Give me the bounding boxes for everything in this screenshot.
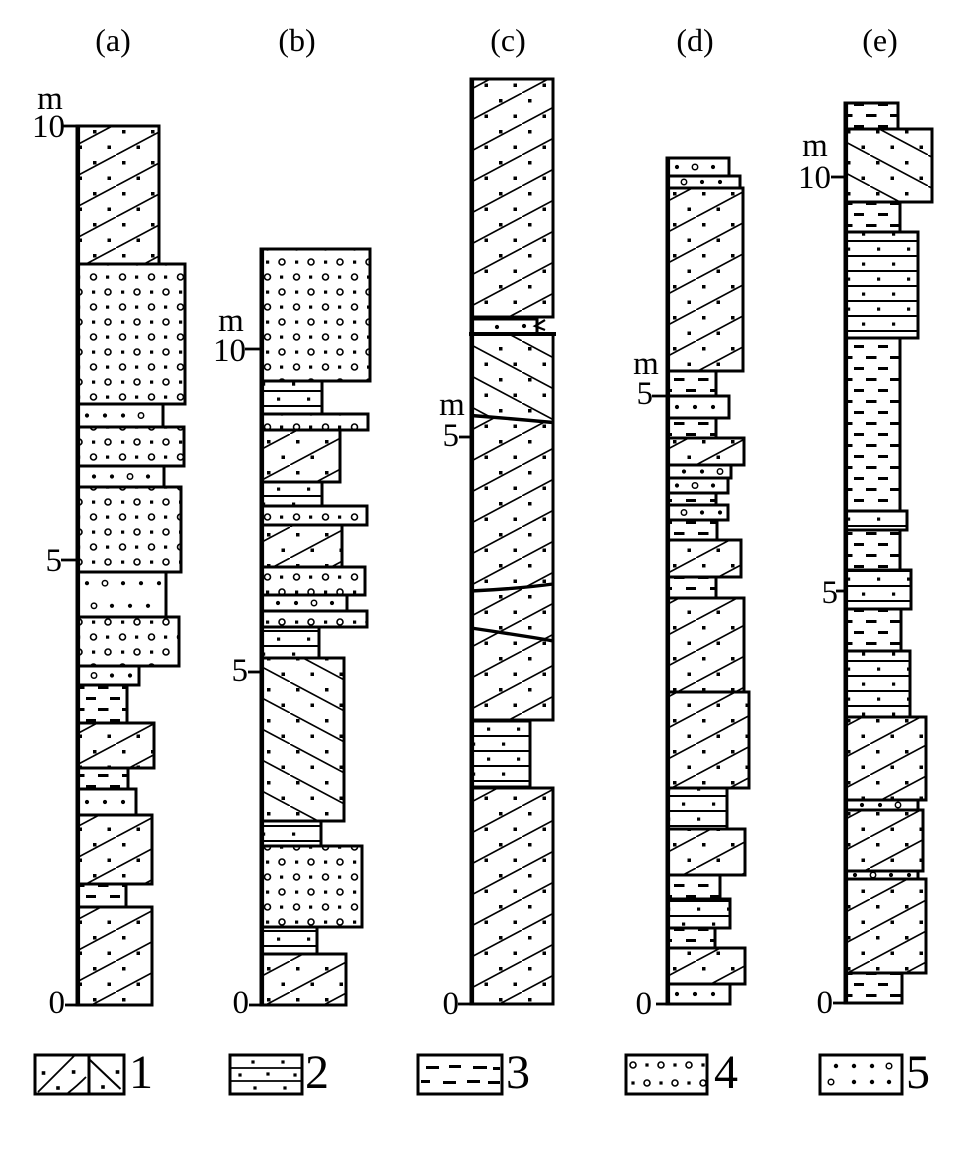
- svg-text:0: 0: [817, 985, 834, 1021]
- svg-text:10: 10: [798, 160, 831, 196]
- svg-text:0: 0: [636, 986, 653, 1022]
- svg-text:2: 2: [305, 1046, 329, 1099]
- svg-text:5: 5: [906, 1046, 930, 1099]
- svg-text:3: 3: [506, 1046, 530, 1099]
- svg-text:1: 1: [129, 1046, 153, 1099]
- svg-text:(b): (b): [278, 22, 315, 58]
- svg-text:5: 5: [443, 418, 460, 454]
- svg-text:0: 0: [233, 985, 250, 1021]
- svg-text:5: 5: [637, 376, 654, 412]
- svg-text:(d): (d): [676, 22, 713, 58]
- svg-text:(e): (e): [862, 22, 898, 58]
- svg-text:(c): (c): [490, 22, 526, 58]
- svg-text:4: 4: [714, 1046, 738, 1099]
- svg-text:m: m: [802, 128, 828, 164]
- svg-text:5: 5: [822, 575, 839, 611]
- svg-text:10: 10: [213, 333, 246, 369]
- svg-text:5: 5: [46, 543, 63, 579]
- svg-text:5: 5: [232, 653, 249, 689]
- svg-text:10: 10: [32, 109, 65, 145]
- svg-text:(a): (a): [95, 22, 131, 58]
- svg-text:0: 0: [443, 986, 460, 1022]
- svg-text:0: 0: [49, 985, 66, 1021]
